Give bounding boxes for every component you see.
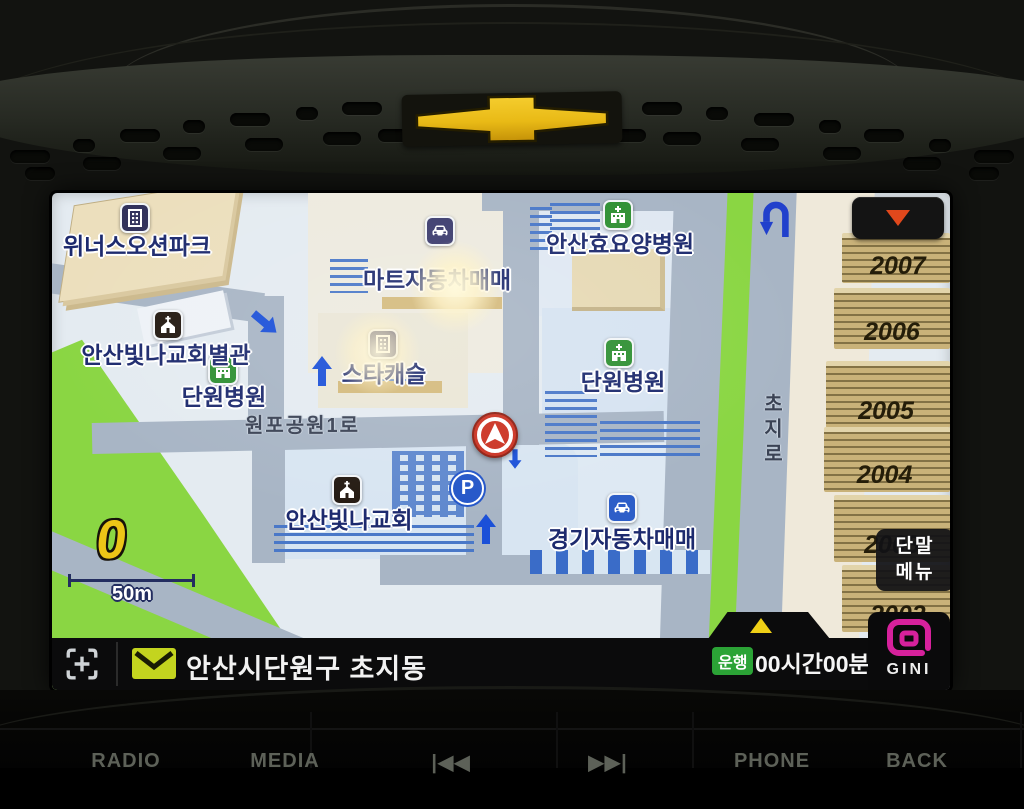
numbered-building: 2006 — [834, 288, 950, 349]
scale-label: 50m — [82, 583, 182, 606]
red-triangle-down-icon — [886, 210, 910, 226]
window-detail — [600, 421, 700, 459]
current-location-text: 안산시단원구 초지동 — [186, 647, 427, 686]
vent-slot — [342, 102, 382, 115]
building-number: 2007 — [870, 252, 926, 281]
button-row-edge — [0, 728, 1024, 730]
terminal-menu-button[interactable]: 단말 메뉴 — [876, 529, 950, 591]
poi-label: 마트자동차매매 — [352, 261, 522, 295]
building-number: 2004 — [857, 461, 913, 490]
vent-slot — [120, 129, 160, 142]
vent-slot — [974, 150, 1014, 163]
numbered-building: 2005 — [826, 361, 950, 428]
road-label: 원포공원1로 — [220, 409, 385, 438]
direction-arrow-icon — [475, 513, 497, 545]
u-turn-icon — [758, 199, 792, 241]
terminal-menu-label: 단말 — [896, 536, 935, 557]
gini-logo-icon — [886, 618, 932, 658]
vent-slot — [903, 157, 941, 170]
window-detail — [545, 391, 597, 457]
vent-slot — [25, 167, 55, 180]
road-label: 초지로 — [757, 393, 786, 468]
poi-label: 단원병원 — [563, 363, 683, 397]
vent-slot — [754, 113, 794, 126]
head-unit: 2007 2006 2005 2004 2003 2002 원포공원1로 초지로 — [0, 0, 1024, 768]
drive-badge: 운행 — [712, 647, 753, 675]
vent-slot — [245, 138, 283, 151]
vent-slot — [864, 129, 904, 142]
current-position-marker — [472, 412, 518, 458]
vent-slot — [296, 107, 318, 120]
building-strip — [382, 297, 502, 309]
hw-button-radio[interactable]: RADIO — [91, 750, 160, 773]
poi-label: 경기자동차매매 — [537, 520, 707, 554]
vent-slot — [823, 147, 861, 160]
vent-slot — [819, 120, 841, 133]
poi-label: 단원병원 — [164, 378, 284, 412]
divider — [1020, 712, 1022, 768]
hw-button-seek-forward[interactable]: ▶▶| — [588, 750, 627, 775]
poi-label: 스타캐슬 — [324, 355, 444, 389]
divider — [116, 642, 118, 686]
hw-button-phone[interactable]: PHONE — [734, 750, 810, 773]
vent-slot — [183, 120, 205, 133]
numbered-building: 2007 — [842, 233, 950, 283]
parking-icon: P — [451, 472, 484, 505]
message-icon[interactable] — [132, 648, 176, 679]
car-dealer-icon[interactable] — [607, 493, 637, 523]
bezel-edge — [0, 686, 1024, 809]
divider — [692, 712, 694, 768]
road-segment — [466, 443, 502, 573]
scale-bar — [68, 579, 195, 582]
chevrolet-logo-plate — [402, 91, 623, 147]
gini-logo-panel[interactable]: GINI — [868, 612, 950, 690]
gps-target-icon[interactable] — [64, 646, 100, 682]
vent-slot — [706, 107, 728, 120]
vent-slot — [969, 167, 999, 180]
vent-slot — [163, 147, 201, 160]
vent-slot — [230, 113, 270, 126]
nav-touchscreen[interactable]: 2007 2006 2005 2004 2003 2002 원포공원1로 초지로 — [52, 193, 950, 690]
vent-slot — [83, 157, 121, 170]
map-scroll-button[interactable] — [852, 197, 944, 239]
speed-value: 0 — [94, 508, 128, 572]
terminal-menu-label: 메뉴 — [896, 562, 935, 583]
vent-slot — [323, 132, 361, 145]
divider — [556, 712, 558, 768]
poi-label: 안산빛나교회 — [279, 501, 419, 535]
vent-slot — [642, 102, 682, 115]
building-number: 2006 — [864, 318, 920, 347]
direction-arrow-icon — [311, 355, 333, 387]
poi-label: 위너스오션파크 — [52, 227, 222, 261]
gini-brand-text: GINI — [868, 661, 950, 679]
building-number: 2005 — [858, 397, 914, 426]
poi-label: 안산효요양병원 — [535, 225, 705, 259]
numbered-building: 2004 — [824, 427, 950, 492]
vent-slot — [929, 139, 951, 152]
vent-slot — [10, 150, 50, 163]
chevrolet-bowtie-icon — [410, 93, 615, 145]
drive-time-text: 00시간00분 — [755, 645, 870, 679]
vent-slot — [663, 132, 701, 145]
alert-triangle-icon — [750, 618, 772, 633]
vent-slot — [741, 138, 779, 151]
hw-button-media[interactable]: MEDIA — [250, 750, 319, 773]
position-arrow-icon — [477, 416, 513, 452]
car-dealer-icon[interactable] — [425, 216, 455, 246]
vent-slot — [73, 139, 95, 152]
hw-button-seek-back[interactable]: |◀◀ — [431, 750, 470, 775]
poi-label: 안산빛나교회별관 — [71, 336, 261, 370]
hw-button-back[interactable]: BACK — [886, 750, 948, 773]
